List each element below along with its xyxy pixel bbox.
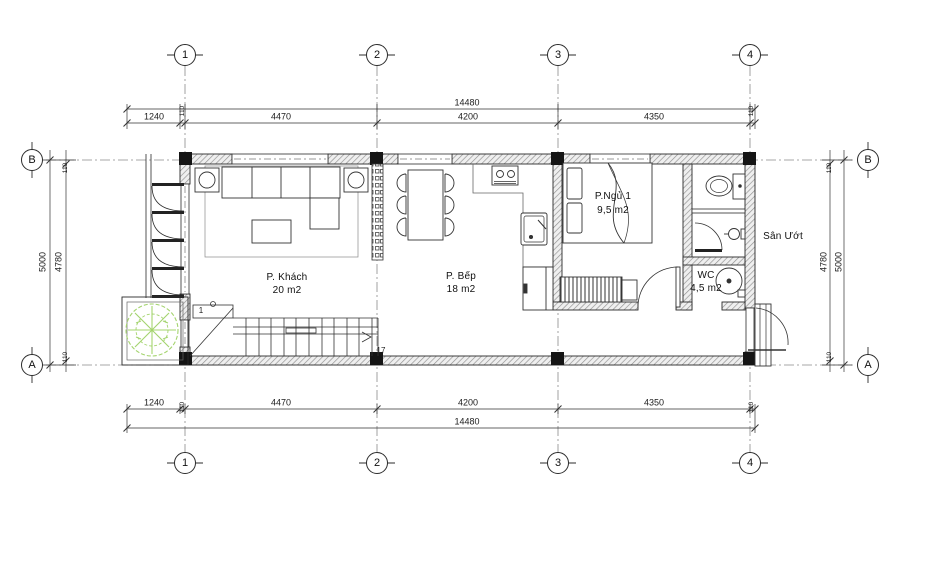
stair-number-first: 1 <box>199 307 203 315</box>
room-label-wc-name: WC <box>697 271 714 281</box>
tree-icon <box>126 304 178 356</box>
dim-span23-top: 4200 <box>458 113 478 122</box>
dim-span23-bottom: 4200 <box>458 399 478 408</box>
bedroom-furniture <box>560 163 680 307</box>
grid-bubble-1-top: 1 <box>174 44 196 66</box>
grid-bubble-3-top: 3 <box>547 44 569 66</box>
dim-total-bottom: 14480 <box>454 418 479 427</box>
decorative-screen <box>372 164 383 260</box>
dim-total-top: 14480 <box>454 99 479 108</box>
dim-offset-bottom-right: 110 <box>749 402 756 412</box>
grid-bubble-1-bottom: 1 <box>174 452 196 474</box>
dim-side-total-left: 5000 <box>39 252 48 272</box>
grid-bubble-A-right: A <box>857 354 879 376</box>
room-label-wc-area: 4,5 m2 <box>690 284 722 294</box>
dim-porch-bottom: 1240 <box>144 399 164 408</box>
room-label-kitchen-area: 18 m2 <box>447 285 476 295</box>
floor-plan-canvas: 1 2 3 4 1 2 3 4 B A B A 14480 1240 4470 … <box>0 0 947 574</box>
grid-bubble-2-top: 2 <box>366 44 388 66</box>
folding-door <box>146 154 184 298</box>
dim-porch-top: 1240 <box>144 113 164 122</box>
dim-side-inner-right: 4780 <box>820 252 829 272</box>
grid-bubble-B-left: B <box>21 149 43 171</box>
room-label-bedroom-name: P.Ngủ 1 <box>595 192 631 202</box>
room-label-living-area: 20 m2 <box>273 286 302 296</box>
room-label-kitchen-name: P. Bếp <box>446 272 476 282</box>
dim-side-offset-right-bottom: 110 <box>827 352 834 362</box>
dim-span12-top: 4470 <box>271 113 291 122</box>
dim-side-total-right: 5000 <box>835 252 844 272</box>
grid-bubble-4-top: 4 <box>739 44 761 66</box>
grid-bubble-2-bottom: 2 <box>366 452 388 474</box>
dim-span12-bottom: 4470 <box>271 399 291 408</box>
label-wet-yard: Sân Ướt <box>763 232 803 242</box>
living-room-furniture <box>195 166 368 257</box>
dim-offset-bottom-left: 110 <box>180 402 187 412</box>
dim-offset-top-left: 110 <box>180 106 187 116</box>
dim-span34-top: 4350 <box>644 113 664 122</box>
room-label-living-name: P. Khách <box>267 273 308 283</box>
dim-offset-top-right: 110 <box>749 106 756 116</box>
dim-side-offset-right-top: 110 <box>827 163 834 173</box>
dim-span34-bottom: 4350 <box>644 399 664 408</box>
wc-thin-partition <box>692 209 745 213</box>
dim-side-inner-left: 4780 <box>55 252 64 272</box>
dim-side-offset-left-top: 110 <box>63 163 70 173</box>
grid-bubble-A-left: A <box>21 354 43 376</box>
dim-side-offset-left-bottom: 110 <box>63 352 70 362</box>
grid-bubble-3-bottom: 3 <box>547 452 569 474</box>
stair-number-last: 17 <box>377 347 386 355</box>
grid-bubble-B-right: B <box>857 149 879 171</box>
grid-bubble-4-bottom: 4 <box>739 452 761 474</box>
room-label-bedroom-area: 9,5 m2 <box>597 206 629 216</box>
stairs <box>190 302 378 357</box>
